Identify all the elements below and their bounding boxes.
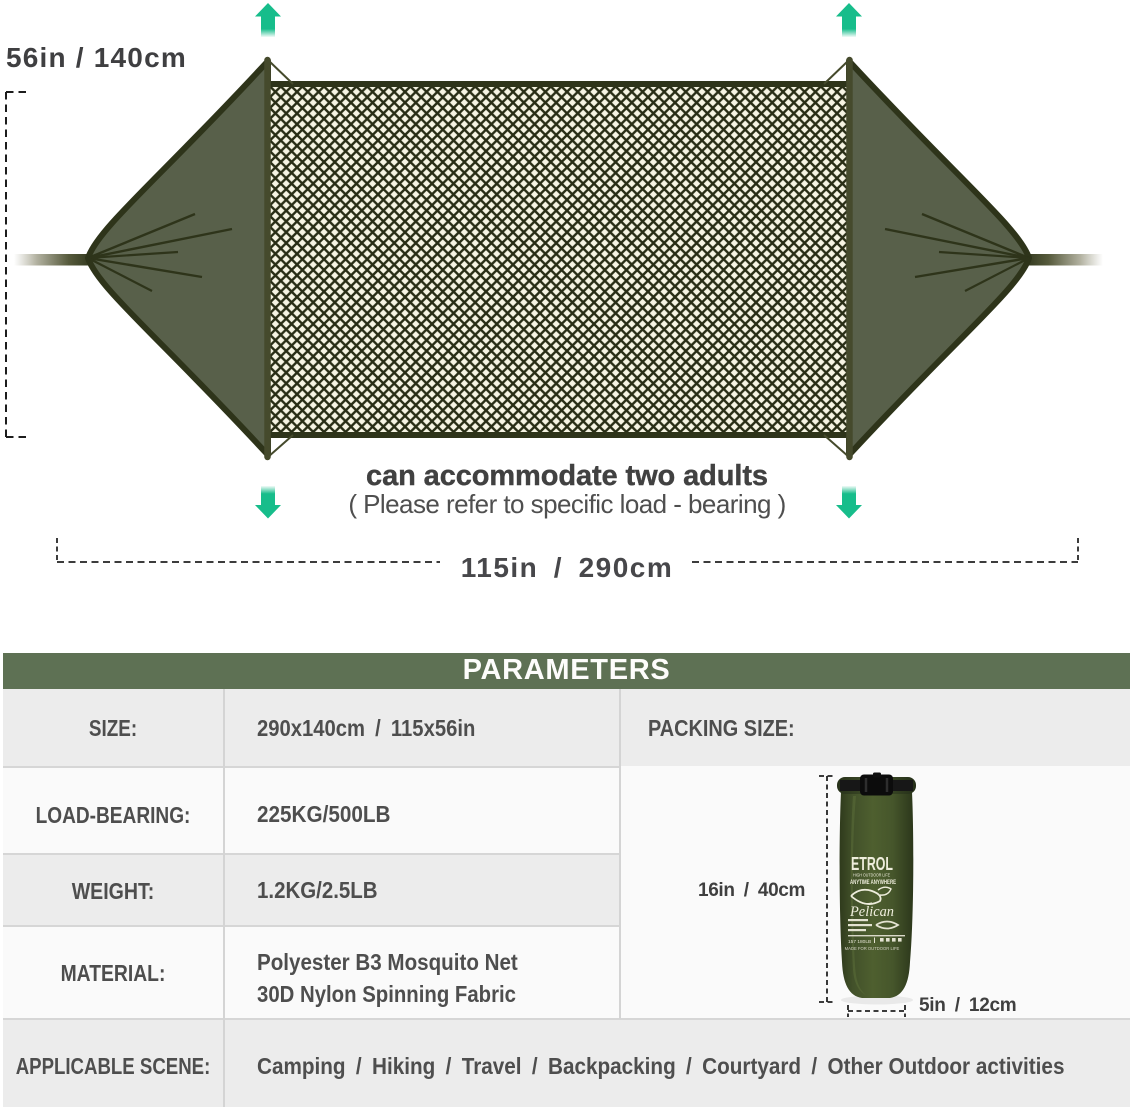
svg-text:ANYTIME ANYWHERE: ANYTIME ANYWHERE <box>850 879 896 886</box>
svg-text:Pelican: Pelican <box>849 904 894 920</box>
svg-text:MADE FOR OUTDOOR LIFE: MADE FOR OUTDOOR LIFE <box>845 946 900 951</box>
svg-text:ETROL: ETROL <box>851 853 893 874</box>
svg-text:157 180LB: 157 180LB <box>848 939 871 945</box>
svg-text:HIGH OUTDOOR LIFE: HIGH OUTDOOR LIFE <box>853 873 890 878</box>
